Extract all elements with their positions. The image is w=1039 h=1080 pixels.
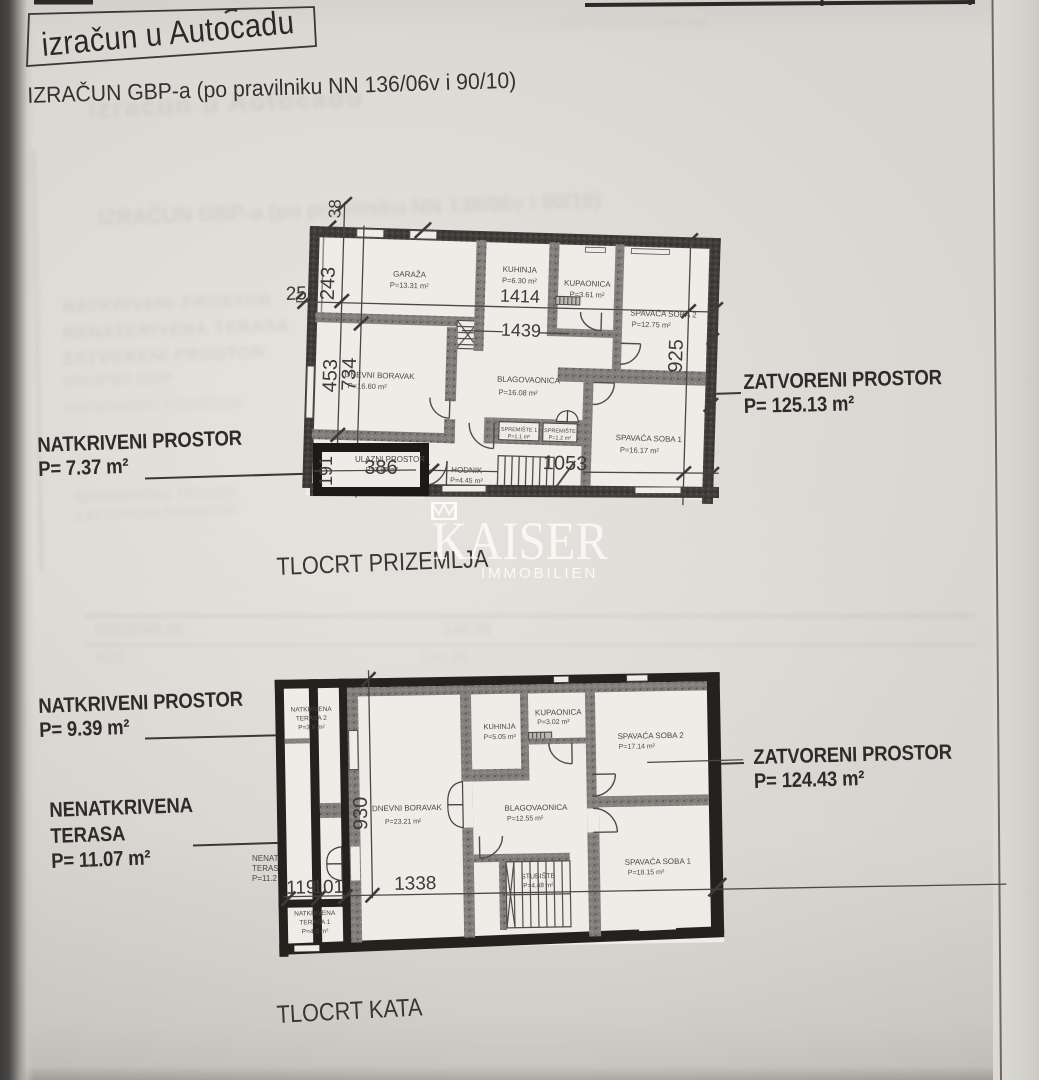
- svg-text:KAISER: KAISER: [432, 511, 608, 571]
- svg-text:IMMOBILIEN: IMMOBILIEN: [481, 565, 598, 582]
- svg-text:P=4.48 m²: P=4.48 m²: [523, 882, 554, 890]
- svg-text:P=17.14 m²: P=17.14 m²: [619, 743, 656, 751]
- svg-text:386: 386: [364, 457, 397, 479]
- svg-text:P=3.61 m²: P=3.61 m²: [570, 290, 606, 300]
- svg-text:1338: 1338: [394, 873, 437, 895]
- svg-text:1053: 1053: [542, 452, 587, 475]
- svg-text:P=13.31 m²: P=13.31 m²: [390, 280, 430, 290]
- svg-text:P=4.45 m²: P=4.45 m²: [450, 477, 483, 485]
- svg-text:P=3.9 m²: P=3.9 m²: [298, 724, 326, 731]
- svg-text:38: 38: [325, 199, 345, 218]
- svg-text:HODNIK: HODNIK: [451, 465, 483, 475]
- svg-text:P=18.15 m²: P=18.15 m²: [628, 869, 665, 877]
- svg-text:P=16.60 m²: P=16.60 m²: [348, 381, 388, 391]
- svg-text:SPREMIŠTE: SPREMIŠTE: [544, 427, 576, 435]
- svg-text:GARAŽA: GARAŽA: [393, 269, 427, 279]
- svg-text:P=5.05 m²: P=5.05 m²: [483, 734, 516, 742]
- svg-text:BLAGOVAONICA: BLAGOVAONICA: [497, 375, 561, 386]
- svg-text:1439: 1439: [501, 320, 542, 341]
- svg-text:BLAGOVAONICA: BLAGOVAONICA: [504, 803, 568, 813]
- svg-text:KUPAONICA: KUPAONICA: [535, 708, 582, 718]
- svg-text:P=4.0 m²: P=4.0 m²: [302, 928, 330, 935]
- svg-text:P=23.21 m²: P=23.21 m²: [385, 818, 422, 826]
- svg-text:243: 243: [317, 267, 340, 301]
- svg-text:925: 925: [665, 339, 688, 373]
- svg-text:P=1.1 m²: P=1.1 m²: [507, 434, 530, 441]
- svg-text:DNEVNI BORAVAK: DNEVNI BORAVAK: [372, 803, 443, 813]
- svg-text:191: 191: [316, 456, 336, 486]
- svg-text:TERASA 2: TERASA 2: [296, 715, 328, 723]
- svg-text:930: 930: [350, 797, 373, 831]
- svg-text:P=1.2 m²: P=1.2 m²: [548, 435, 571, 442]
- svg-text:P=12.75 m²: P=12.75 m²: [632, 320, 672, 330]
- svg-text:NATKRIVENA: NATKRIVENA: [291, 706, 333, 714]
- svg-text:SPREMIŠTE 1: SPREMIŠTE 1: [501, 426, 538, 434]
- svg-text:KUHINJA: KUHINJA: [483, 722, 515, 732]
- svg-text:P=16.17 m²: P=16.17 m²: [620, 445, 660, 455]
- svg-text:P=3.02 m²: P=3.02 m²: [537, 719, 570, 727]
- svg-text:P=16.08 m²: P=16.08 m²: [499, 388, 539, 398]
- svg-text:1414: 1414: [500, 286, 541, 307]
- svg-text:P=12.55 m²: P=12.55 m²: [507, 815, 544, 823]
- svg-text:NATKRIVENA: NATKRIVENA: [294, 910, 336, 918]
- svg-text:KUHINJA: KUHINJA: [503, 265, 538, 275]
- svg-text:P=6.30 m²: P=6.30 m²: [502, 276, 538, 286]
- svg-text:101: 101: [312, 877, 344, 899]
- svg-text:KUPAONICA: KUPAONICA: [564, 279, 611, 289]
- svg-text:SPAVAĆA SOBA 1: SPAVAĆA SOBA 1: [625, 857, 692, 867]
- svg-text:TERASA 1: TERASA 1: [299, 919, 331, 927]
- svg-text:SPAVAĆA SOBA 2: SPAVAĆA SOBA 2: [617, 731, 684, 741]
